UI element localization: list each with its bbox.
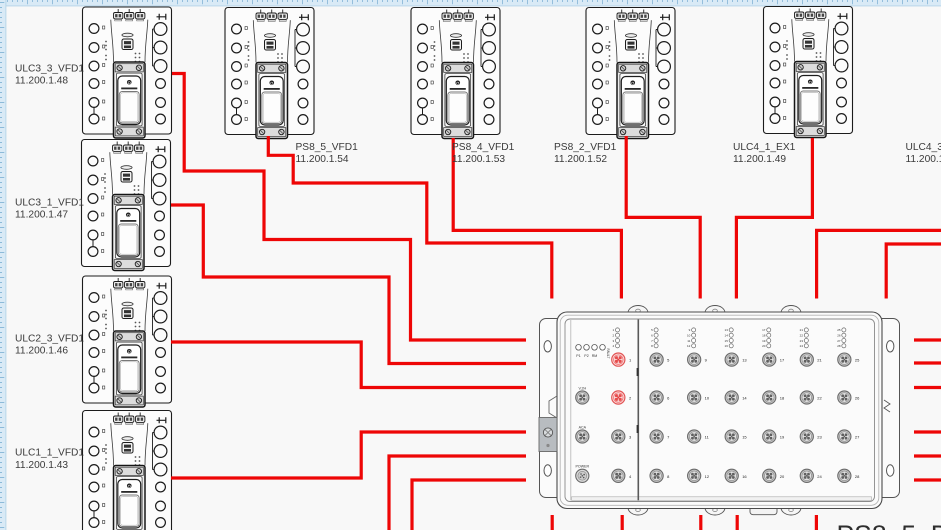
svg-text:14: 14 (725, 334, 729, 338)
svg-text:22: 22 (800, 334, 804, 338)
svg-text:P1: P1 (576, 354, 580, 358)
svg-text:20: 20 (780, 474, 785, 479)
svg-text:17: 17 (762, 328, 766, 332)
svg-text:15: 15 (725, 339, 729, 343)
svg-text:28: 28 (837, 344, 841, 348)
svg-text:12: 12 (705, 474, 710, 479)
svg-text:V.2H: V.2H (578, 387, 586, 391)
svg-text:19: 19 (762, 339, 766, 343)
svg-text:12: 12 (687, 344, 691, 348)
svg-text:PS8_5_DBM1: PS8_5_DBM1 (837, 520, 941, 530)
svg-text:22: 22 (817, 396, 822, 401)
svg-text:20: 20 (762, 344, 766, 348)
svg-text:19: 19 (780, 435, 785, 440)
svg-text:13: 13 (725, 328, 729, 332)
svg-text:ULC4_3_VFD111.200.1.50: ULC4_3_VFD111.200.1.50 (906, 142, 941, 165)
svg-text:24: 24 (817, 474, 822, 479)
svg-text:10: 10 (705, 396, 710, 401)
svg-text:23: 23 (800, 339, 804, 343)
svg-text:FAULT: FAULT (606, 349, 610, 359)
svg-text:10: 10 (687, 334, 691, 338)
svg-text:26: 26 (855, 396, 860, 401)
svg-text:POWER: POWER (576, 465, 590, 469)
svg-text:14: 14 (742, 396, 747, 401)
svg-text:28: 28 (855, 474, 860, 479)
svg-text:27: 27 (855, 435, 860, 440)
svg-text:RM: RM (592, 354, 598, 358)
svg-text:16: 16 (725, 344, 729, 348)
svg-text:15: 15 (742, 435, 747, 440)
svg-text:25: 25 (855, 358, 860, 363)
svg-text:26: 26 (837, 334, 841, 338)
svg-text:11: 11 (687, 339, 690, 343)
svg-text:23: 23 (817, 435, 822, 440)
svg-text:24: 24 (800, 344, 804, 348)
svg-text:21: 21 (800, 328, 804, 332)
svg-text:P2: P2 (584, 354, 588, 358)
svg-text:27: 27 (837, 339, 841, 343)
svg-text:ACA: ACA (579, 426, 587, 430)
svg-text:25: 25 (837, 328, 841, 332)
svg-text:17: 17 (780, 358, 785, 363)
svg-text:13: 13 (742, 358, 747, 363)
svg-text:21: 21 (817, 358, 822, 363)
svg-text:18: 18 (780, 396, 785, 401)
svg-text:18: 18 (762, 334, 766, 338)
svg-text:16: 16 (742, 474, 747, 479)
